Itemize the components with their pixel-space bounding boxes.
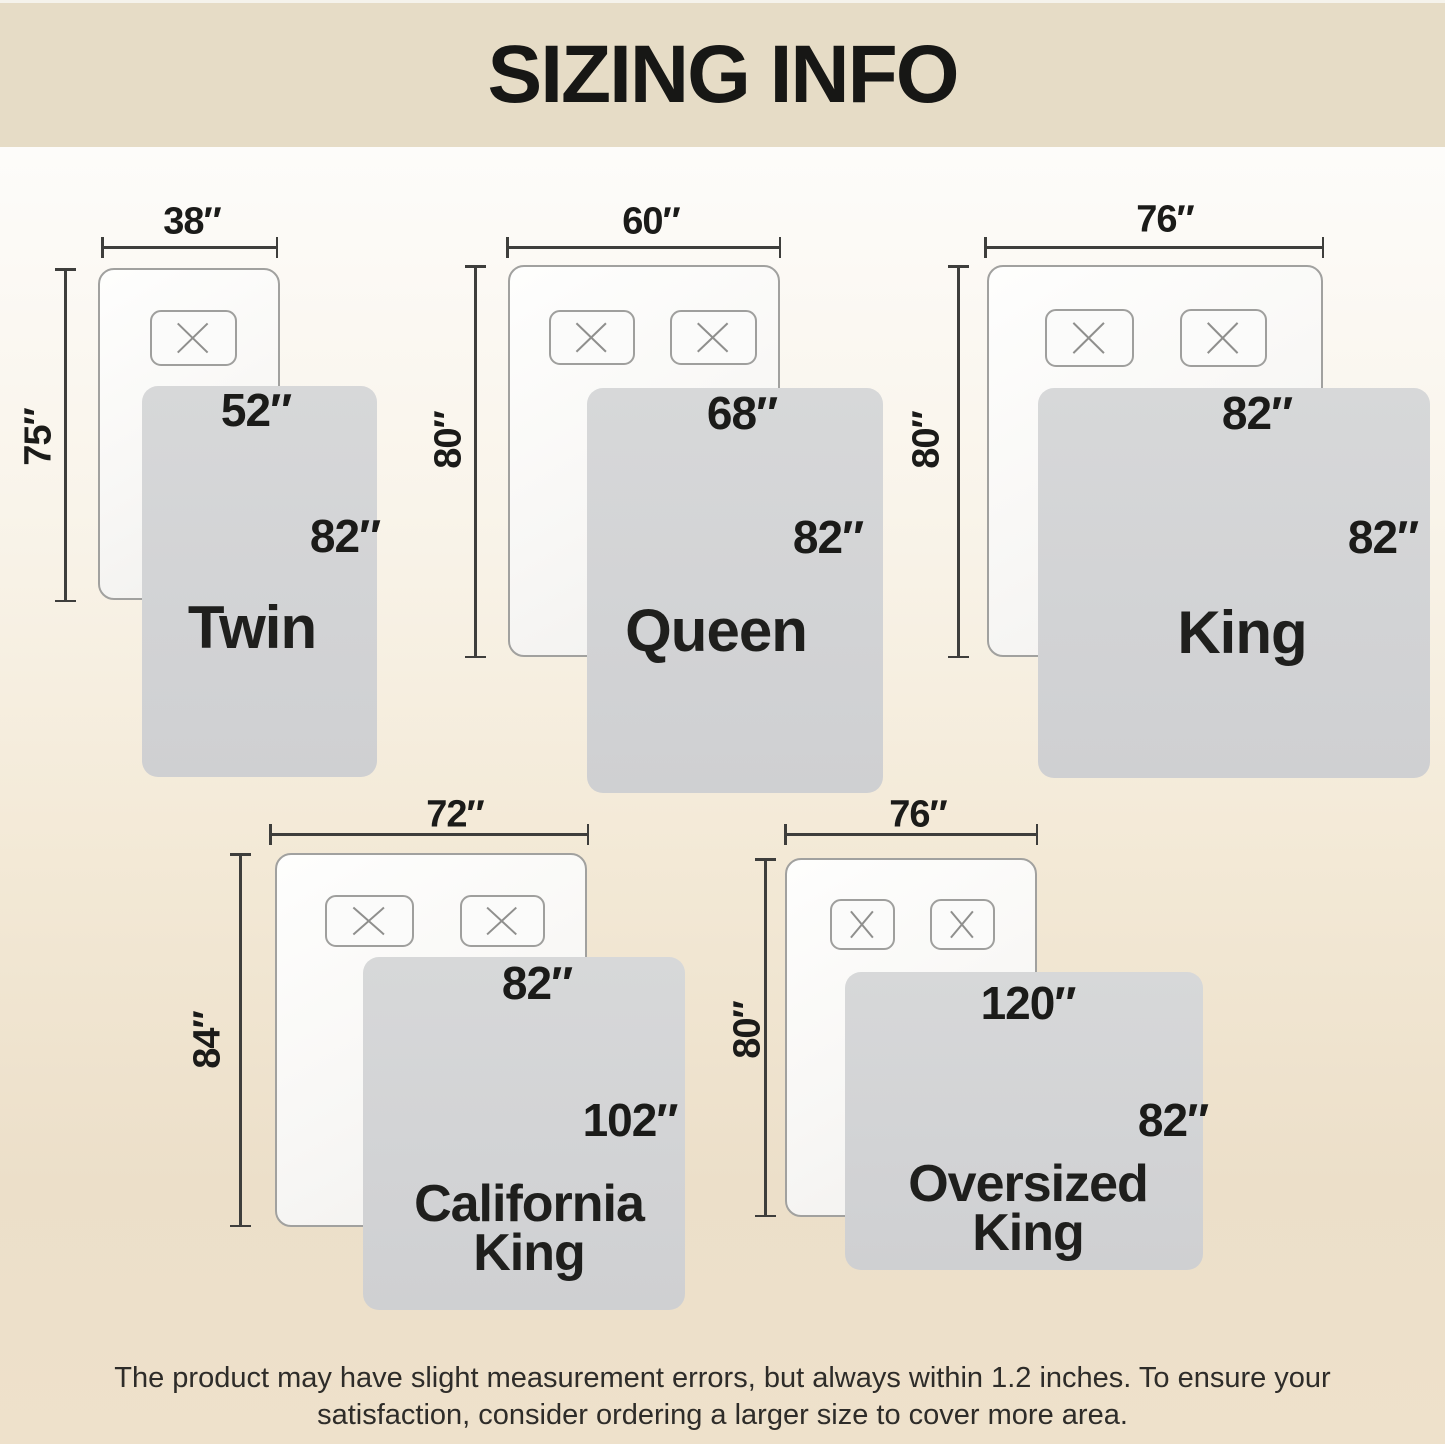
- disclaimer-text: The product may have slight measurement …: [0, 1360, 1445, 1434]
- blanket-shape: 82″ 82″ King: [1038, 388, 1430, 778]
- size-name-line: Twin: [188, 599, 316, 657]
- disclaimer-line-1: The product may have slight measurement …: [0, 1360, 1445, 1397]
- size-name-label: Queen: [625, 602, 807, 660]
- pillow-stitch-icon: [1047, 311, 1132, 365]
- blanket-length-label: 82″: [310, 509, 380, 563]
- size-name-line: Queen: [625, 602, 807, 660]
- pillow-stitch-icon: [1182, 311, 1265, 365]
- bed-width-label: 76″: [889, 794, 946, 837]
- blanket-shape: 120″ 82″ Oversized King: [845, 972, 1203, 1270]
- pillow-shape: [1045, 309, 1134, 367]
- california-king-size-diagram: 72″ 84″ 82″ 102″ California: [180, 795, 700, 1325]
- blanket-length-label: 82″: [1348, 510, 1418, 564]
- pillow-shape: [549, 310, 635, 365]
- oversized-king-size-diagram: 76″ 80″ 120″ 82″ Oversized K: [720, 795, 1250, 1325]
- size-name-line: King: [908, 1209, 1148, 1258]
- bed-length-label: 80″: [727, 1001, 770, 1058]
- length-dimension-line: [474, 265, 477, 658]
- pillow-shape: [930, 899, 995, 950]
- bed-width-label: 76″: [1136, 199, 1193, 242]
- bed-width-label: 60″: [622, 201, 679, 244]
- size-name-label: California King: [414, 1180, 644, 1278]
- pillow-stitch-icon: [462, 897, 543, 945]
- size-name-label: Oversized King: [908, 1160, 1148, 1258]
- blanket-shape: 82″ 102″ California King: [363, 957, 685, 1310]
- bed-width-label: 38″: [163, 201, 220, 244]
- pillow-shape: [830, 899, 895, 950]
- disclaimer-line-2: satisfaction, consider ordering a larger…: [0, 1397, 1445, 1434]
- blanket-width-label: 52″: [221, 383, 291, 437]
- queen-size-diagram: 60″ 80″ 68″ 82″ Queen: [420, 200, 900, 800]
- length-dimension-line: [239, 853, 242, 1227]
- blanket-width-label: 82″: [502, 956, 572, 1010]
- sizing-info-page: SIZING INFO 38″ 75″ 52″ 82″ Twin 60″: [0, 0, 1445, 1444]
- size-name-line: King: [414, 1229, 644, 1278]
- width-dimension-line: [985, 246, 1323, 249]
- bed-width-label: 72″: [426, 794, 483, 837]
- size-name-line: Oversized: [908, 1160, 1148, 1209]
- length-dimension-line: [957, 265, 960, 658]
- blanket-length-label: 82″: [793, 510, 863, 564]
- blanket-width-label: 120″: [981, 976, 1076, 1030]
- width-dimension-line: [507, 246, 780, 249]
- page-title: SIZING INFO: [488, 28, 958, 122]
- blanket-width-label: 68″: [707, 386, 777, 440]
- pillow-shape: [1180, 309, 1267, 367]
- pillow-stitch-icon: [327, 897, 412, 945]
- blanket-width-label: 82″: [1222, 386, 1292, 440]
- bed-length-label: 75″: [18, 408, 61, 465]
- size-name-line: King: [1177, 604, 1306, 662]
- blanket-length-label: 82″: [1138, 1093, 1208, 1147]
- pillow-stitch-icon: [152, 312, 235, 364]
- size-name-label: Twin: [188, 599, 316, 657]
- bed-length-label: 84″: [187, 1011, 230, 1068]
- twin-size-diagram: 38″ 75″ 52″ 82″ Twin: [20, 200, 400, 800]
- size-name-line: California: [414, 1180, 644, 1229]
- blanket-length-label: 102″: [583, 1093, 678, 1147]
- width-dimension-line: [102, 246, 277, 249]
- pillow-stitch-icon: [551, 312, 633, 363]
- bed-length-label: 80″: [428, 411, 471, 468]
- pillow-stitch-icon: [832, 901, 893, 948]
- pillow-stitch-icon: [932, 901, 993, 948]
- size-name-label: King: [1177, 604, 1306, 662]
- pillow-stitch-icon: [672, 312, 755, 363]
- pillow-shape: [460, 895, 545, 947]
- king-size-diagram: 76″ 80″ 82″ 82″ King: [900, 200, 1445, 800]
- pillow-shape: [670, 310, 757, 365]
- blanket-shape: 68″ 82″ Queen: [587, 388, 883, 793]
- length-dimension-line: [64, 268, 67, 602]
- header-band: SIZING INFO: [0, 0, 1445, 147]
- blanket-shape: 52″ 82″ Twin: [142, 386, 377, 777]
- pillow-shape: [150, 310, 237, 366]
- pillow-shape: [325, 895, 414, 947]
- bed-length-label: 80″: [906, 411, 949, 468]
